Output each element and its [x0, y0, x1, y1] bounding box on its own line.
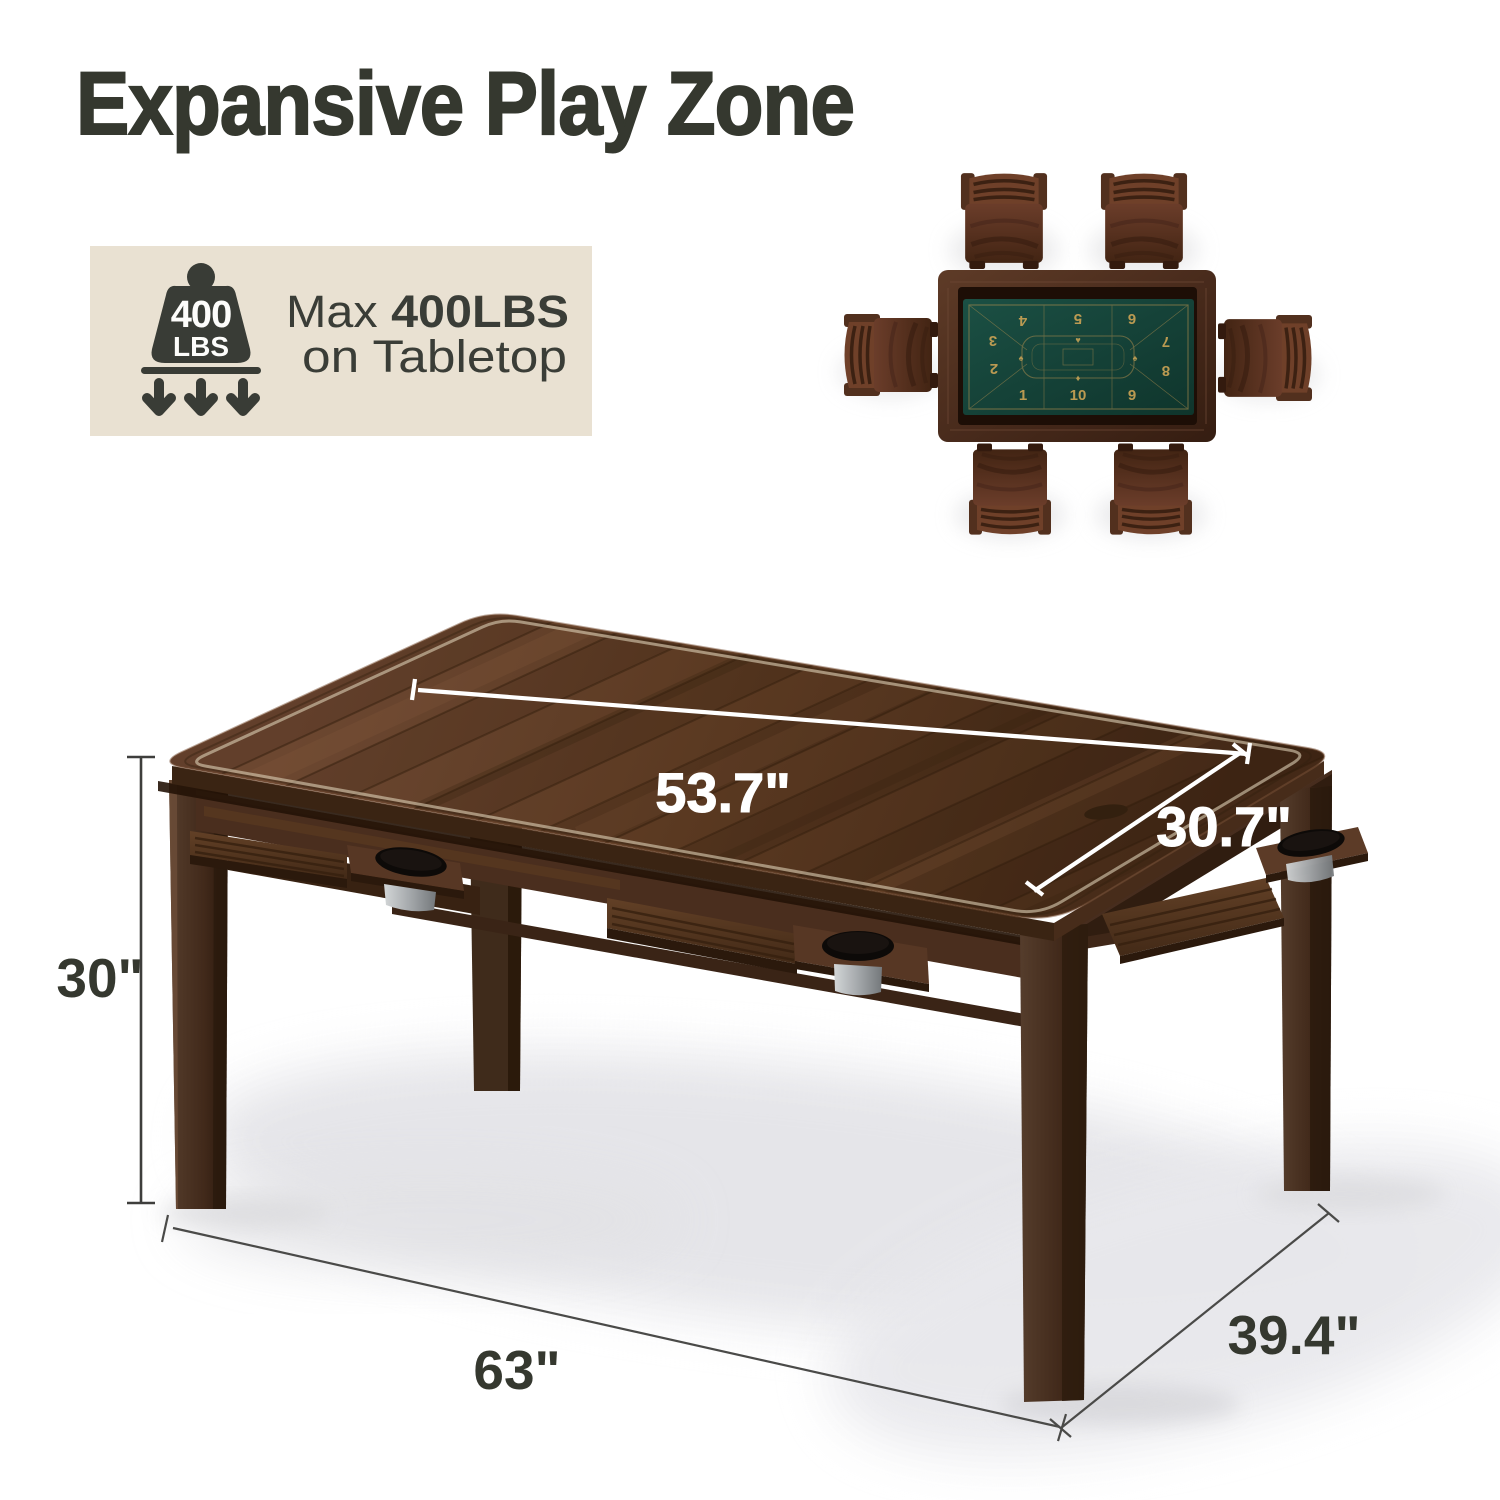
svg-text:8: 8	[1162, 362, 1170, 379]
svg-text:4: 4	[1018, 312, 1027, 329]
svg-text:2: 2	[990, 360, 998, 377]
svg-text:39.4": 39.4"	[1227, 1304, 1360, 1366]
svg-text:10: 10	[1070, 387, 1087, 404]
svg-text:63": 63"	[473, 1339, 560, 1401]
svg-text:6: 6	[1128, 310, 1136, 327]
svg-text:LBS: LBS	[173, 331, 229, 362]
svg-text:on Tabletop: on Tabletop	[302, 331, 567, 382]
svg-text:7: 7	[1162, 333, 1170, 350]
svg-text:3: 3	[989, 332, 997, 349]
svg-text:30.7": 30.7"	[1156, 795, 1292, 858]
svg-text:♠: ♠	[1019, 353, 1024, 363]
svg-text:400: 400	[171, 294, 231, 336]
svg-text:53.7": 53.7"	[655, 761, 791, 824]
svg-text:9: 9	[1128, 387, 1136, 404]
svg-text:5: 5	[1074, 310, 1082, 327]
svg-text:♠: ♠	[1133, 353, 1138, 363]
svg-text:Max 400LBS: Max 400LBS	[286, 286, 569, 337]
svg-text:30": 30"	[56, 947, 143, 1009]
svg-text:1: 1	[1019, 387, 1027, 404]
svg-text:♥: ♥	[1075, 335, 1080, 345]
svg-text:Expansive Play Zone: Expansive Play Zone	[76, 53, 854, 153]
svg-text:♦: ♦	[1076, 373, 1081, 383]
